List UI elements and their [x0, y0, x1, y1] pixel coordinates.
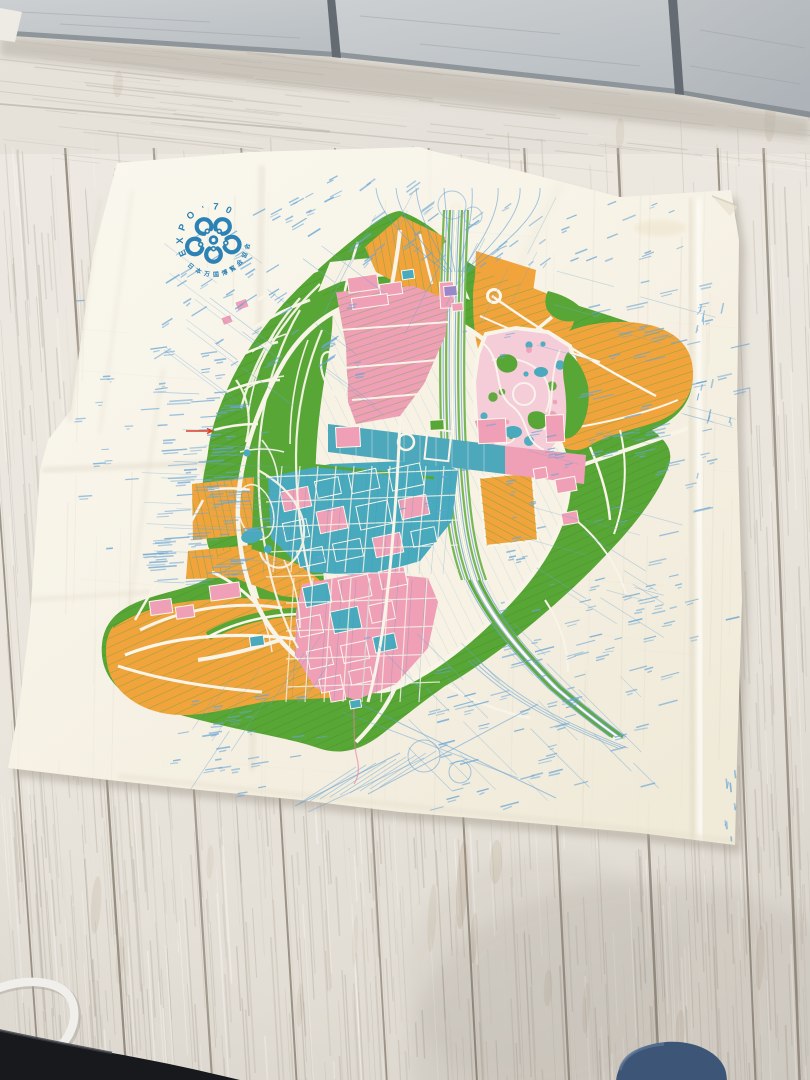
svg-text:7: 7 [213, 201, 219, 212]
svg-text:X: X [175, 237, 186, 244]
svg-text:万: 万 [202, 270, 210, 278]
